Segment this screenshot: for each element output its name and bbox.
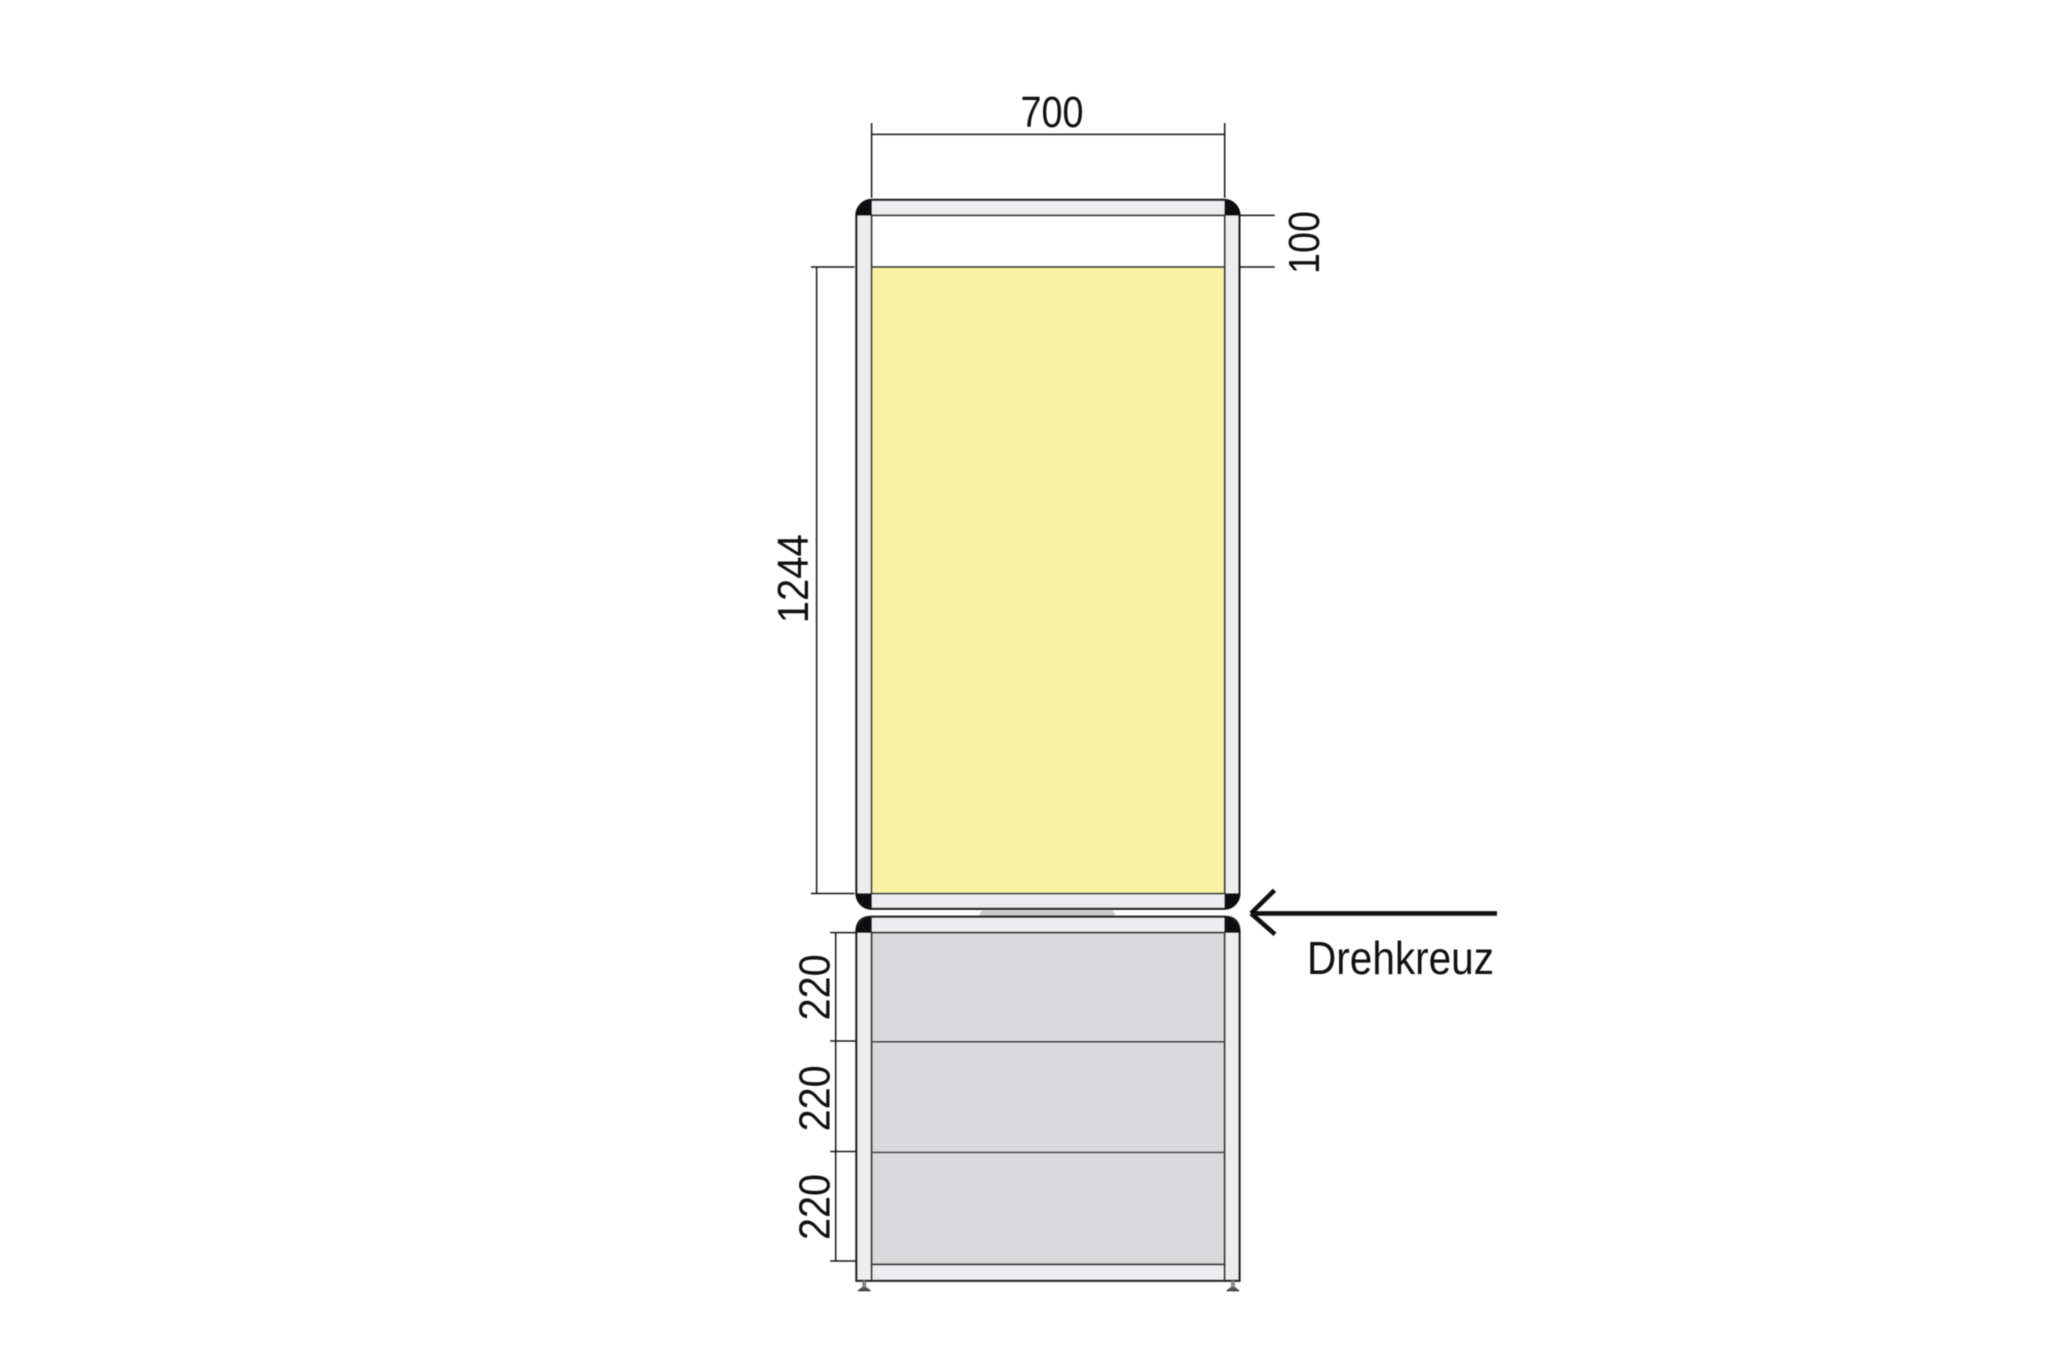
svg-text:220: 220: [790, 1065, 839, 1131]
svg-text:1244: 1244: [769, 534, 818, 623]
svg-text:100: 100: [1280, 211, 1329, 274]
svg-text:700: 700: [1021, 88, 1084, 137]
svg-text:220: 220: [790, 1174, 839, 1240]
svg-text:220: 220: [790, 954, 839, 1020]
svg-text:Drehkreuz: Drehkreuz: [1307, 932, 1494, 984]
